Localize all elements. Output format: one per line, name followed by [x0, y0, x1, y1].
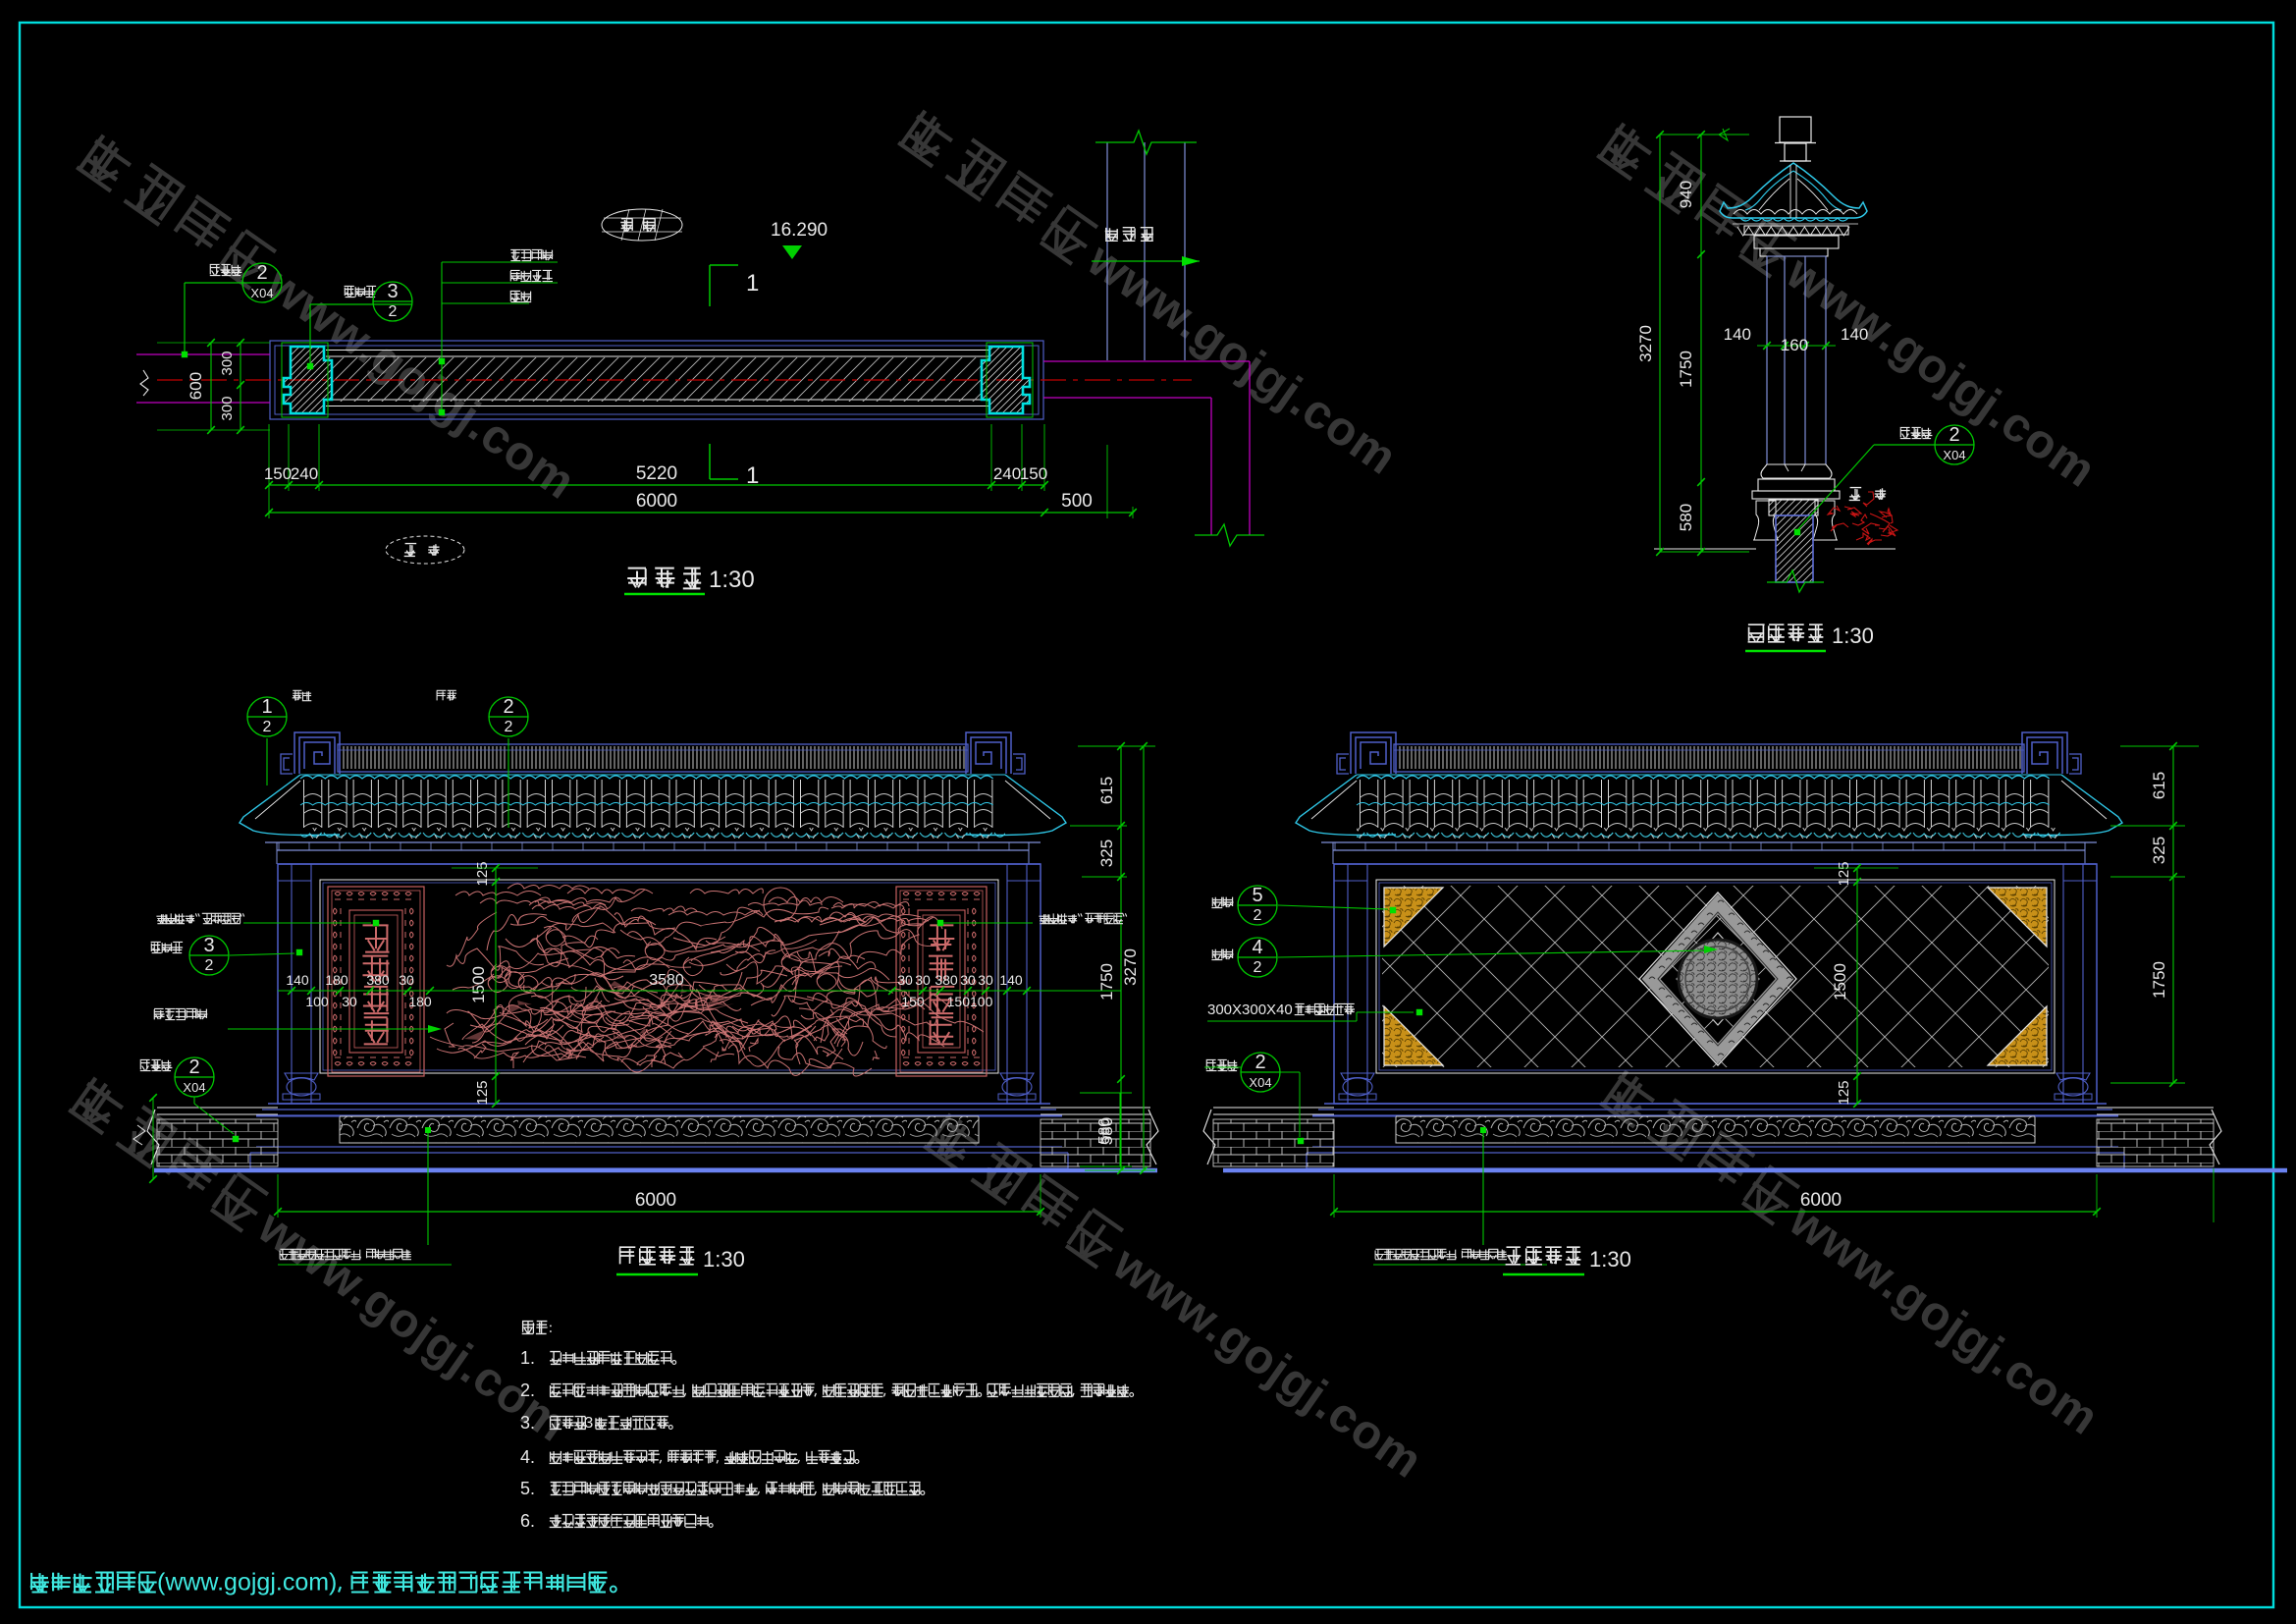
- svg-text:1: 1: [261, 696, 272, 718]
- svg-text:940: 940: [1677, 181, 1695, 208]
- svg-text:380: 380: [934, 972, 958, 988]
- svg-text:2: 2: [256, 262, 267, 284]
- svg-text:2.: 2.: [520, 1380, 535, 1400]
- svg-text:2: 2: [205, 957, 214, 974]
- svg-text:1.: 1.: [520, 1348, 535, 1368]
- svg-text:325: 325: [2150, 837, 2168, 864]
- svg-text:1500: 1500: [469, 966, 488, 1003]
- svg-text:6000: 6000: [635, 1190, 676, 1211]
- svg-text:150: 150: [1020, 464, 1047, 483]
- svg-text:140: 140: [999, 972, 1023, 988]
- svg-text:125: 125: [474, 1080, 491, 1105]
- svg-text:3.: 3.: [520, 1413, 535, 1433]
- svg-text:580: 580: [1677, 504, 1695, 531]
- svg-text:150: 150: [901, 994, 925, 1009]
- svg-text:300X300X40: 300X300X40: [1207, 1001, 1293, 1018]
- svg-text:325: 325: [1097, 839, 1116, 867]
- svg-text:580: 580: [1096, 1118, 1113, 1145]
- svg-text:240: 240: [993, 464, 1021, 483]
- svg-text:1750: 1750: [1677, 351, 1695, 388]
- svg-text:615: 615: [1097, 777, 1116, 804]
- svg-text:140: 140: [1724, 325, 1751, 344]
- svg-text:(www.gojgj.com): (www.gojgj.com): [157, 1569, 337, 1597]
- svg-text:30: 30: [960, 972, 976, 988]
- svg-text:6000: 6000: [1800, 1190, 1842, 1211]
- svg-text:300: 300: [219, 396, 236, 420]
- svg-text:1:30: 1:30: [709, 567, 755, 593]
- svg-text:4.: 4.: [520, 1447, 535, 1467]
- svg-text:125: 125: [1836, 861, 1852, 886]
- svg-text:100: 100: [305, 994, 329, 1009]
- svg-text:125: 125: [474, 861, 491, 886]
- svg-text:3270: 3270: [1121, 948, 1140, 986]
- svg-text:1500: 1500: [1831, 963, 1849, 1001]
- svg-text:2: 2: [1254, 959, 1262, 976]
- svg-text:X04: X04: [1943, 448, 1965, 462]
- svg-text:3: 3: [203, 935, 214, 956]
- svg-text:140: 140: [286, 972, 309, 988]
- svg-text:2: 2: [1255, 1052, 1265, 1073]
- svg-text:140: 140: [1841, 325, 1868, 344]
- svg-text:1:30: 1:30: [703, 1247, 745, 1272]
- svg-text:2: 2: [1254, 907, 1262, 924]
- svg-text:2: 2: [263, 719, 272, 735]
- svg-text:1750: 1750: [1097, 963, 1116, 1001]
- svg-text:5220: 5220: [636, 463, 677, 484]
- svg-text:6.: 6.: [520, 1511, 535, 1531]
- svg-text:150: 150: [264, 464, 292, 483]
- svg-text:180: 180: [325, 972, 348, 988]
- svg-text:16.290: 16.290: [771, 220, 828, 241]
- svg-text:150100: 150100: [947, 994, 993, 1009]
- svg-text:30: 30: [342, 994, 357, 1009]
- svg-text:2: 2: [1949, 424, 1959, 446]
- svg-text:125: 125: [1836, 1080, 1852, 1105]
- svg-text:5: 5: [1252, 885, 1262, 906]
- svg-text:180: 180: [408, 994, 432, 1009]
- svg-text:500: 500: [1061, 491, 1093, 512]
- svg-text:240: 240: [291, 464, 318, 483]
- svg-text:1750: 1750: [2150, 961, 2168, 999]
- svg-text:X04: X04: [183, 1080, 205, 1095]
- svg-text:3: 3: [584, 1415, 593, 1432]
- svg-text:2: 2: [505, 719, 513, 735]
- svg-text:X04: X04: [250, 286, 273, 300]
- svg-text:30: 30: [915, 972, 931, 988]
- svg-text:1:30: 1:30: [1589, 1247, 1631, 1272]
- svg-text:300: 300: [219, 351, 236, 375]
- svg-text:380: 380: [366, 972, 390, 988]
- svg-text:4: 4: [1252, 937, 1262, 958]
- svg-text:1: 1: [746, 270, 759, 297]
- svg-text:30: 30: [897, 972, 913, 988]
- svg-text:160: 160: [1781, 336, 1808, 354]
- svg-text:2: 2: [389, 303, 398, 320]
- svg-text:600: 600: [187, 372, 205, 400]
- svg-text:3580: 3580: [649, 972, 684, 989]
- svg-text:5.: 5.: [520, 1479, 535, 1498]
- svg-text:3270: 3270: [1636, 325, 1655, 362]
- svg-text:2: 2: [188, 1056, 199, 1078]
- svg-text:3: 3: [387, 281, 398, 302]
- svg-text:2: 2: [503, 696, 513, 718]
- svg-text:30: 30: [978, 972, 993, 988]
- svg-text:X04: X04: [1249, 1075, 1271, 1090]
- svg-text:30: 30: [399, 972, 414, 988]
- svg-text:6000: 6000: [636, 491, 677, 512]
- svg-text:615: 615: [2150, 772, 2168, 799]
- svg-text:1:30: 1:30: [1832, 623, 1874, 648]
